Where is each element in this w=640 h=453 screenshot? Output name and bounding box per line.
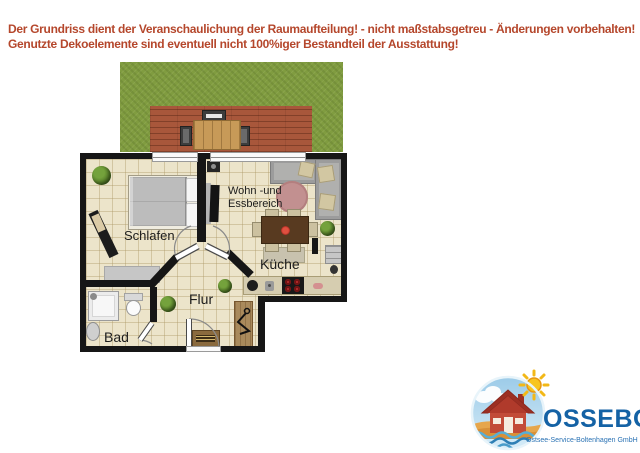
kitchen-item (330, 265, 338, 274)
room-label-schlafen: Schlafen (124, 228, 175, 243)
sofa-cushion (298, 161, 316, 179)
wall-bottom (80, 346, 265, 352)
room-label-wohn-line1: Wohn -und (228, 185, 282, 198)
flower-decor (281, 226, 290, 235)
plant-icon (160, 296, 176, 312)
dining-chair (308, 222, 318, 237)
wall-bath-right (150, 287, 157, 322)
plant-icon (320, 221, 335, 236)
disclaimer-text: Der Grundriss dient der Veranschaulichun… (8, 22, 640, 52)
dining-table (261, 216, 309, 244)
entrance-threshold (186, 346, 221, 352)
toilet (126, 300, 141, 316)
shower (88, 291, 119, 321)
disclaimer-line-2: Genutzte Dekoelemente sind eventuell nic… (8, 37, 640, 52)
kitchen-counter (243, 276, 343, 295)
brand-subtitle: Ostsee-Service-Boltenhagen GmbH (526, 437, 640, 444)
speaker-device (207, 161, 220, 172)
wall-kitchen-stub (312, 238, 318, 254)
shower-head-icon (90, 293, 97, 300)
wall-left (80, 153, 86, 352)
tv-icon (209, 185, 219, 222)
wall-hall-right (258, 296, 265, 352)
floorplan-page: Der Grundriss dient der Veranschaulichun… (0, 0, 640, 453)
terrace-table (193, 120, 241, 150)
sofa-cushion (317, 165, 335, 183)
room-label-wohnbereich: Wohn -und Essbereich (228, 185, 282, 211)
sofa-cushion (318, 193, 336, 211)
disclaimer-line-1: Der Grundriss dient der Veranschaulichun… (8, 22, 640, 37)
wall-bedroom-bottom (86, 280, 152, 287)
terrace-chair-left (180, 126, 192, 146)
wall-bedroom-living (197, 159, 206, 242)
kitchen-sink (247, 280, 258, 291)
brand-name: OSSEBO (543, 405, 640, 434)
sun-icon (520, 371, 548, 399)
room-label-bad: Bad (104, 329, 129, 345)
terrace-door-living (210, 152, 306, 162)
wardrobe (234, 301, 253, 348)
stove (282, 277, 304, 294)
bathroom-sink (86, 322, 100, 341)
faucet (265, 281, 274, 291)
room-label-flur: Flur (189, 291, 213, 307)
wall-right (341, 153, 347, 302)
terrace-door-bedroom (152, 152, 198, 162)
room-label-wohn-line2: Essbereich (228, 198, 282, 211)
dish (313, 283, 323, 289)
room-label-kueche: Küche (260, 256, 300, 272)
doormat (192, 330, 220, 347)
bed-duvet (130, 177, 187, 226)
kitchen-cabinet (325, 245, 342, 264)
double-bed (128, 175, 202, 230)
plant-icon (218, 279, 232, 293)
wall-kitchen-bottom (258, 296, 347, 302)
plant-icon (92, 166, 111, 185)
